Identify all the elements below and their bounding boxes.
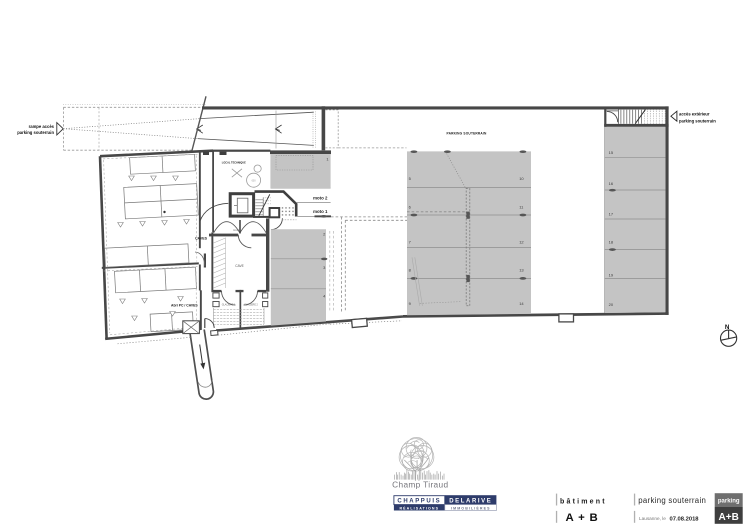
svg-text:A+B: A+B [719,512,739,523]
svg-text:07.08.2018: 07.08.2018 [670,516,700,522]
svg-text:moto 2: moto 2 [313,195,328,200]
svg-text:RÉALISATIONS: RÉALISATIONS [399,505,439,510]
svg-text:600: 600 [252,179,257,182]
svg-text:17: 17 [609,211,614,216]
svg-text:LOCAL TECHNIQUE: LOCAL TECHNIQUE [222,161,246,164]
svg-text:bâtiment: bâtiment [560,498,607,505]
svg-text:DELARIVE: DELARIVE [449,499,492,505]
svg-text:parking: parking [718,499,740,505]
svg-text:rampe accès: rampe accès [29,124,55,129]
svg-text:20: 20 [609,302,614,307]
svg-text:CAVE: CAVE [235,264,243,268]
svg-text:N: N [725,324,730,331]
svg-text:14: 14 [519,301,524,306]
svg-text:A + B: A + B [566,512,599,524]
svg-text:Lausanne, le: Lausanne, le [639,516,666,521]
svg-text:accès extérieur: accès extérieur [679,111,710,116]
svg-text:GLACIERE 1: GLACIERE 1 [222,304,236,307]
svg-text:15: 15 [609,150,614,155]
svg-text:Champ Tiraud: Champ Tiraud [392,480,448,490]
svg-text:HALL: HALL [233,228,240,232]
svg-text:parking souterrain: parking souterrain [17,130,54,135]
svg-text:parking souterrain: parking souterrain [638,496,706,505]
svg-text:19: 19 [609,272,614,277]
svg-text:moto 1: moto 1 [313,209,328,214]
svg-text:16: 16 [609,181,614,186]
svg-text:12: 12 [519,240,524,245]
svg-text:PARKING SOUTERRAIN: PARKING SOUTERRAIN [446,131,487,135]
svg-text:parking souterrain: parking souterrain [679,118,716,123]
svg-text:CHAPPUIS: CHAPPUIS [397,499,441,505]
svg-text:13: 13 [519,268,524,273]
svg-text:Abri PC / CAVES: Abri PC / CAVES [171,304,198,308]
svg-text:GLACIERE 2: GLACIERE 2 [244,304,258,307]
svg-text:18: 18 [609,239,614,244]
svg-text:IMMOBILIÈRES: IMMOBILIÈRES [451,505,491,510]
svg-text:10: 10 [519,176,524,181]
